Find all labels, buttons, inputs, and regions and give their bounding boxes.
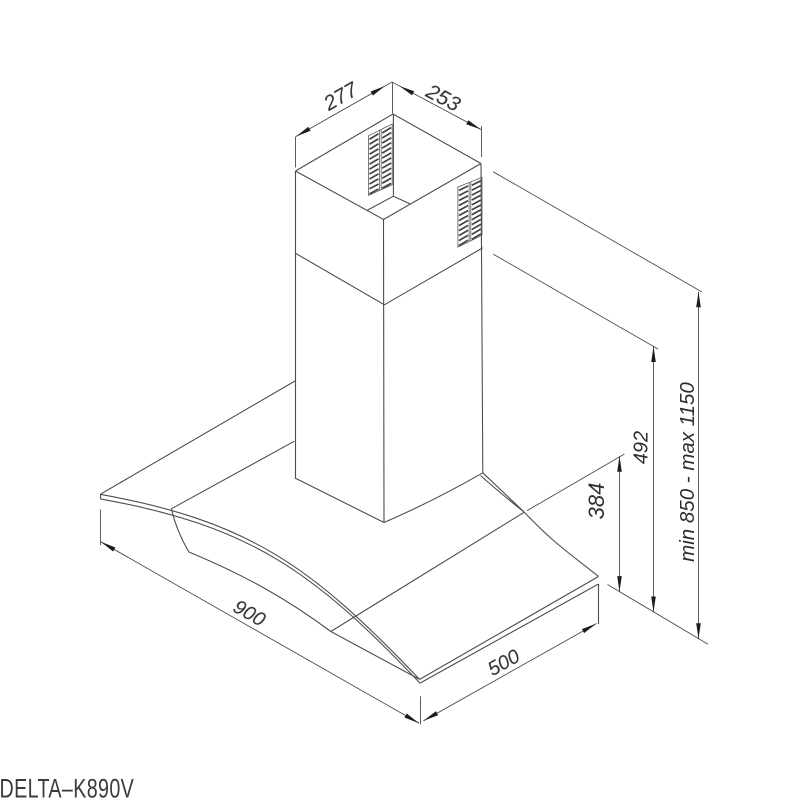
svg-text:min 850 - max 1150: min 850 - max 1150	[676, 382, 699, 562]
svg-text:DELTA–K890V: DELTA–K890V	[0, 775, 134, 800]
svg-text:384: 384	[584, 483, 609, 520]
svg-text:492: 492	[631, 431, 653, 464]
